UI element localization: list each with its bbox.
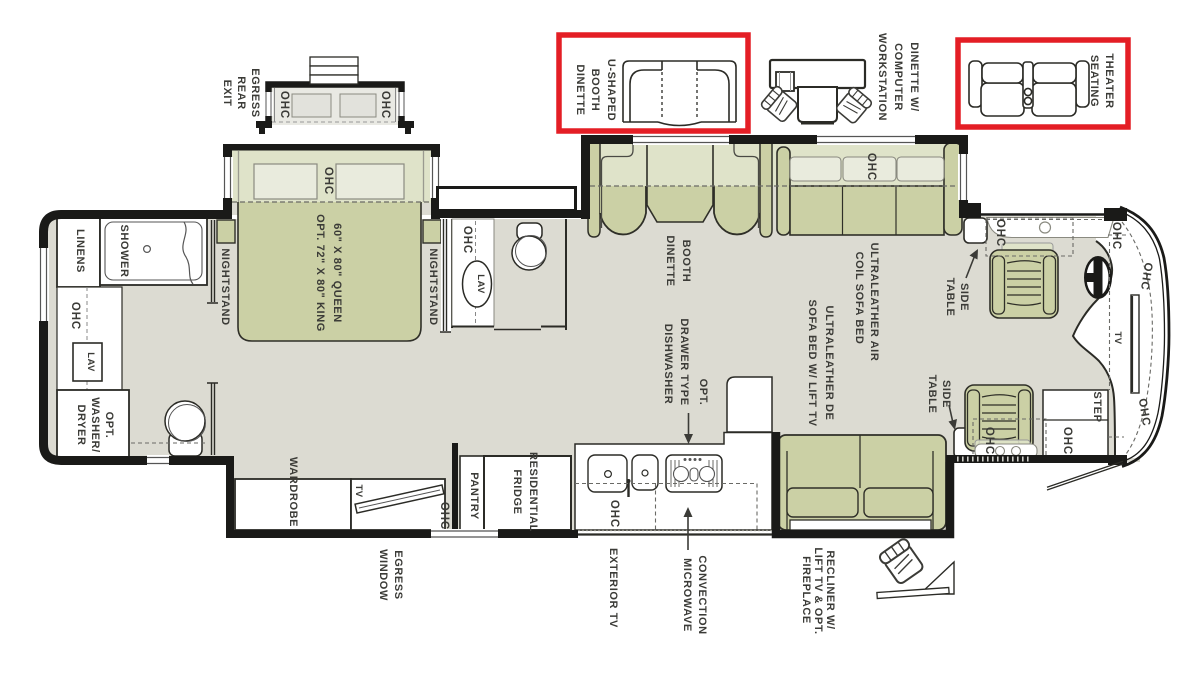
svg-text:RECLINER W/: RECLINER W/ [824,550,836,629]
svg-text:PANTRY: PANTRY [468,472,480,520]
svg-text:BOOTH: BOOTH [680,240,692,283]
svg-text:NIGHTSTAND: NIGHTSTAND [219,248,231,325]
svg-text:OHC: OHC [983,427,995,455]
svg-text:TV: TV [353,485,364,498]
svg-text:OPT.: OPT. [697,379,709,406]
svg-text:COMPUTER: COMPUTER [892,43,904,111]
svg-text:MICROWAVE: MICROWAVE [681,558,693,632]
svg-text:EXTERIOR TV: EXTERIOR TV [607,548,619,628]
svg-text:DINETTE: DINETTE [664,235,676,286]
svg-text:60" X 80" QUEEN: 60" X 80" QUEEN [331,223,343,323]
svg-text:OHC: OHC [278,91,290,119]
svg-text:EGRESS: EGRESS [392,550,404,599]
svg-text:OHC: OHC [865,153,877,181]
svg-text:U-SHAPED: U-SHAPED [605,59,617,121]
svg-text:SOFA BED W/ LIFT TV: SOFA BED W/ LIFT TV [806,299,818,426]
svg-text:EGRESS: EGRESS [249,68,261,117]
svg-text:SEATING: SEATING [1088,55,1100,107]
svg-text:DINETTE W/: DINETTE W/ [908,42,920,112]
svg-text:TABLE: TABLE [944,278,956,317]
svg-text:WORKSTATION: WORKSTATION [876,33,888,121]
svg-text:ULTRALEATHER AIR: ULTRALEATHER AIR [868,243,880,362]
svg-text:THEATER: THEATER [1103,53,1115,108]
svg-text:DRYER: DRYER [75,404,87,445]
svg-text:WINDOW: WINDOW [377,549,389,601]
svg-text:WARDROBE: WARDROBE [287,457,299,527]
svg-text:CONVECTION: CONVECTION [696,555,708,634]
svg-text:REAR: REAR [235,76,247,110]
svg-text:OHC: OHC [1061,427,1073,455]
svg-text:OHC: OHC [608,500,620,528]
svg-text:COIL SOFA BED: COIL SOFA BED [853,252,865,345]
svg-text:FIREPLACE: FIREPLACE [800,556,812,624]
svg-text:LINENS: LINENS [74,229,86,273]
svg-text:DRAWER TYPE: DRAWER TYPE [678,318,690,405]
svg-text:TABLE: TABLE [926,375,938,414]
svg-text:DISHWASHER: DISHWASHER [662,324,674,405]
svg-text:LIFT TV & OPT.: LIFT TV & OPT. [812,547,824,634]
svg-text:SHOWER: SHOWER [118,224,130,277]
svg-text:STEP: STEP [1091,391,1103,422]
svg-text:OPT. 72" X 80" KING: OPT. 72" X 80" KING [314,214,326,332]
svg-text:ULTRALEATHER DE: ULTRALEATHER DE [823,306,835,421]
svg-text:SIDE: SIDE [958,283,970,311]
svg-text:OPT.: OPT. [103,412,115,439]
svg-text:OHC: OHC [438,502,450,530]
svg-text:OHC: OHC [69,302,81,330]
svg-text:RESIDENTIAL: RESIDENTIAL [527,452,539,532]
svg-text:LAV: LAV [475,274,486,294]
svg-text:TV: TV [1112,332,1123,345]
svg-text:DINETTE: DINETTE [574,64,586,115]
svg-text:WASHER/: WASHER/ [89,397,101,453]
svg-text:BOOTH: BOOTH [589,69,601,112]
svg-text:LAV: LAV [85,352,96,372]
svg-text:NIGHTSTAND: NIGHTSTAND [427,248,439,325]
svg-text:SIDE: SIDE [940,380,952,408]
svg-text:OHC: OHC [379,91,391,119]
svg-text:EXIT: EXIT [221,80,233,107]
svg-text:OHC: OHC [322,167,334,195]
svg-text:OHC: OHC [1110,222,1122,250]
svg-text:FRIDGE: FRIDGE [511,469,523,514]
svg-text:OHC: OHC [461,226,473,254]
svg-text:OHC: OHC [994,219,1006,247]
